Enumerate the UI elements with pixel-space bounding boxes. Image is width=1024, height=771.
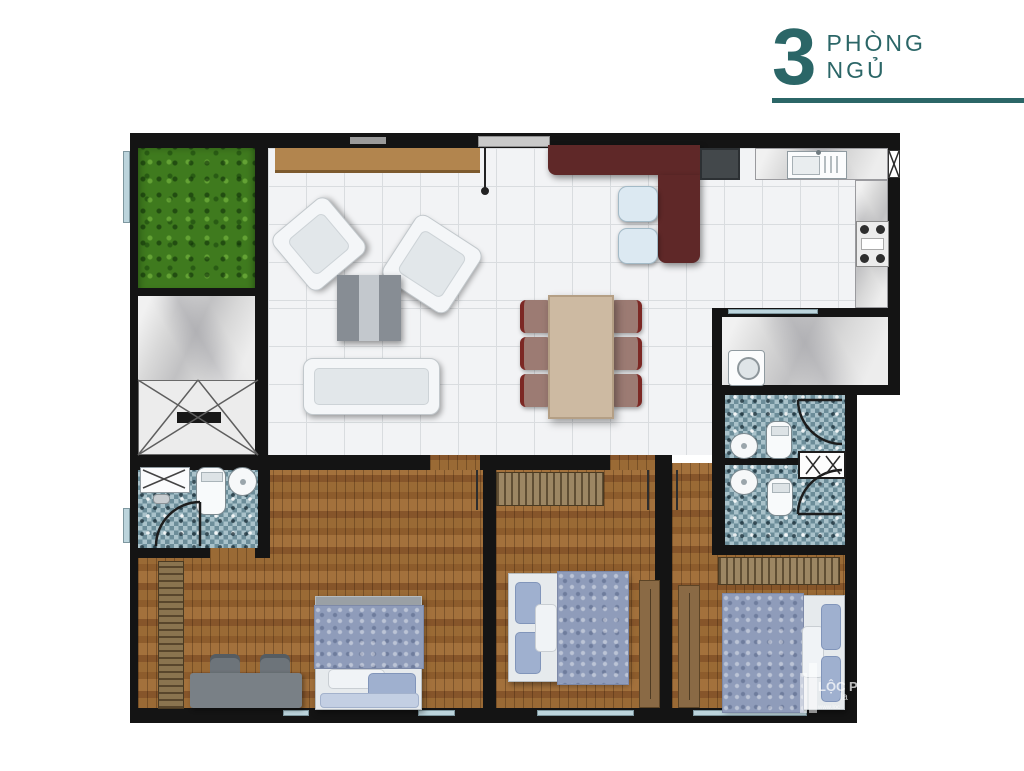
coffee-table [337,275,401,341]
bedroom-2-wardrobe [496,472,604,506]
wall-bed1-bed2 [483,455,496,723]
burner-1 [860,225,869,234]
wall-left [130,133,138,723]
burner-3 [860,254,869,263]
bathroom-1-door-threshold [210,548,255,558]
bar-counter-horizontal [548,145,700,175]
bed-1-duvet [314,605,424,669]
bar-stool-2 [618,228,658,264]
toilet-1 [196,467,226,515]
wall-laundry-bottom [712,385,900,395]
bedroom-1-window-a [283,710,309,716]
entry-threshold [478,136,550,147]
watermark-text-2: la [840,692,848,703]
armchair-1-seat [287,212,352,277]
burner-2 [876,225,885,234]
desk [190,673,302,708]
bed-2-pillow-white [535,604,557,652]
corner-shaft [888,150,900,178]
wall-bathroom1-bottom-a [130,548,210,558]
bed-3-pillow-blue-1 [821,604,841,650]
bedroom-count-heading: 3 PHÒNG NGỦ [772,22,926,92]
hall-floor [672,463,712,563]
bedroom-2-door-threshold [610,455,655,470]
watermark: LỘC P la www.loc [790,653,857,715]
laundry-window [728,309,818,314]
bedroom-1-wardrobe [158,561,184,709]
bar-counter-vertical [658,175,700,263]
bed-2-duvet [557,571,629,685]
sink-2 [730,433,758,459]
outside-mask [857,395,900,723]
watermark-text-3: www.loc [818,705,840,711]
toilet-2 [766,421,792,459]
bedroom-count-number: 3 [772,22,817,92]
terrace-floor [138,296,255,380]
wall-bathrooms-left [712,395,725,555]
wall-bathroom1-right [258,455,270,558]
sink-1 [228,467,257,496]
dining-chair-5 [610,337,642,370]
watermark-text-1: LỘC P [818,679,857,694]
sink-drain-line-3 [836,156,838,173]
sink-faucet [816,150,821,155]
heading-underline [772,98,1024,103]
armchair-2-seat [397,229,468,299]
watermark-logo-tower-1 [800,673,807,713]
dining-chair-4 [610,300,642,333]
page: 3 PHÒNG NGỦ [0,0,1024,771]
sink-drain-line-2 [830,156,832,173]
wall-grass-terrace [130,288,255,296]
bed-1-blanket [320,693,419,708]
balcony-garden [138,140,255,288]
sink-basin [792,156,820,175]
bedroom-1-door-threshold [430,455,480,470]
stove-panel [861,238,884,250]
watermark-logo-tower-2 [809,663,817,713]
bar-stool-1 [618,186,658,222]
bedroom-3-cabinet [678,585,700,708]
floor-plan: LỘC P la www.loc [130,133,900,723]
bed-1-footboard [316,597,421,605]
bathroom-1-fitting [153,494,170,504]
wall-living-bedrooms-b [480,455,610,470]
shower-tray [140,467,190,493]
stove [856,221,889,267]
sink-3 [730,469,758,495]
console-cabinet [275,148,480,173]
refrigerator [700,148,740,180]
burner-4 [876,254,885,263]
wall-balcony-divider [255,133,268,468]
wall-laundry-left [712,315,722,395]
washer-drum [737,357,760,380]
kitchen-sink [787,151,847,179]
dining-table [548,295,614,419]
bedroom-3-wardrobe [718,557,840,585]
bathroom-1-window [123,508,130,543]
bedroom-1-window-b [418,710,455,716]
dining-chair-6 [610,374,642,407]
sink-drain-line-1 [824,156,826,173]
bed-2 [508,573,627,682]
wall-bedroom3-top [712,545,845,555]
coffee-table-top [359,275,379,341]
heading-line1: PHÒNG [827,30,926,58]
bedroom-count-label: PHÒNG NGỦ [827,30,926,85]
stairwell-landing-bar [177,412,221,423]
wall-bathroom1-bottom-b [255,548,270,558]
sofa [303,358,440,415]
sofa-seat [314,368,429,405]
wall-vent [350,137,386,144]
toilet-3 [767,478,793,516]
balcony-window [123,151,130,223]
bed-1 [315,596,422,710]
heading-line2: NGỦ [827,57,926,85]
bedroom-2-window [537,710,634,716]
washing-machine [728,350,765,386]
duct-shaft [798,451,846,479]
bedroom-2-cabinet [639,580,660,708]
